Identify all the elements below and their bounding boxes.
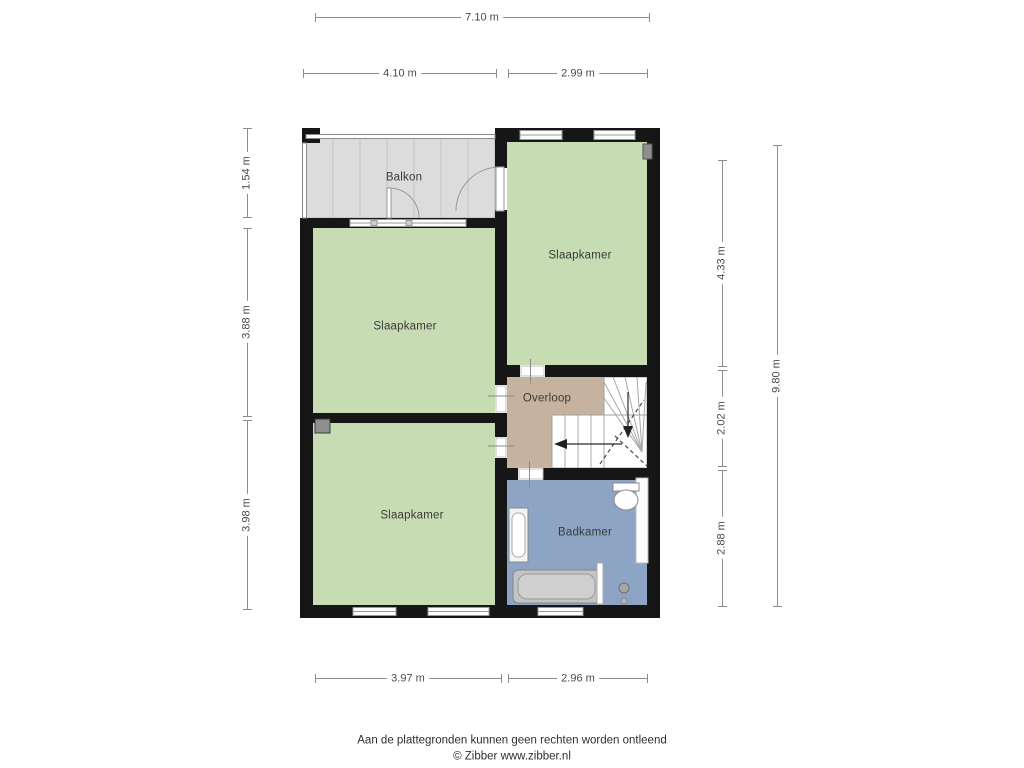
footer-disclaimer: Aan de plattegronden kunnen geen rechten… [357,735,666,747]
floorplan-page: Balkon Slaapkamer Slaapkamer Overloop Sl… [0,0,1024,768]
door-opening-badkamer [519,469,543,479]
door-opening-slaapkamer-midden [496,386,506,412]
door-opening-slaapkamer-onder [496,438,506,457]
dim-label-top-right: 2.99 m [557,69,599,80]
wall-vent [643,144,652,159]
sink [509,508,528,562]
dim-label-top-total: 7.10 m [461,13,503,24]
dim-label-left-bottom: 3.98 m [242,494,253,536]
dim-label-bottom-left: 3.97 m [387,674,429,685]
room-label-overloop: Overloop [523,393,571,405]
dim-label-left-middle: 3.88 m [242,301,253,343]
dim-label-right-middle: 2.02 m [717,397,728,439]
door-opening-slaapkamer-rechts [521,366,544,376]
dim-label-right-bottom: 2.88 m [717,517,728,559]
dim-label-right-total: 9.80 m [772,355,783,397]
dim-label-top-left: 4.10 m [379,69,421,80]
room-label-slaapkamer-midden: Slaapkamer [373,321,436,333]
room-label-slaapkamer-rechts: Slaapkamer [548,250,611,262]
bathtub [513,570,602,603]
dim-label-bottom-right: 2.96 m [557,674,599,685]
shower-tap [621,598,627,604]
dim-label-right-top: 4.33 m [717,242,728,284]
toilet [613,483,639,510]
shower-drain [619,583,629,593]
floorplan-drawing [0,0,1024,768]
door-leaf-balkon [387,188,391,218]
shower-screen [597,563,603,604]
door-leaf-slaapkamer-balkon [496,167,504,211]
room-label-badkamer: Badkamer [558,527,612,539]
duct-block [315,419,330,433]
room-label-balkon: Balkon [386,172,422,184]
dim-label-left-top: 1.54 m [242,152,253,194]
room-label-slaapkamer-onder: Slaapkamer [380,510,443,522]
footer-copyright: © Zibber www.zibber.nl [453,751,571,763]
